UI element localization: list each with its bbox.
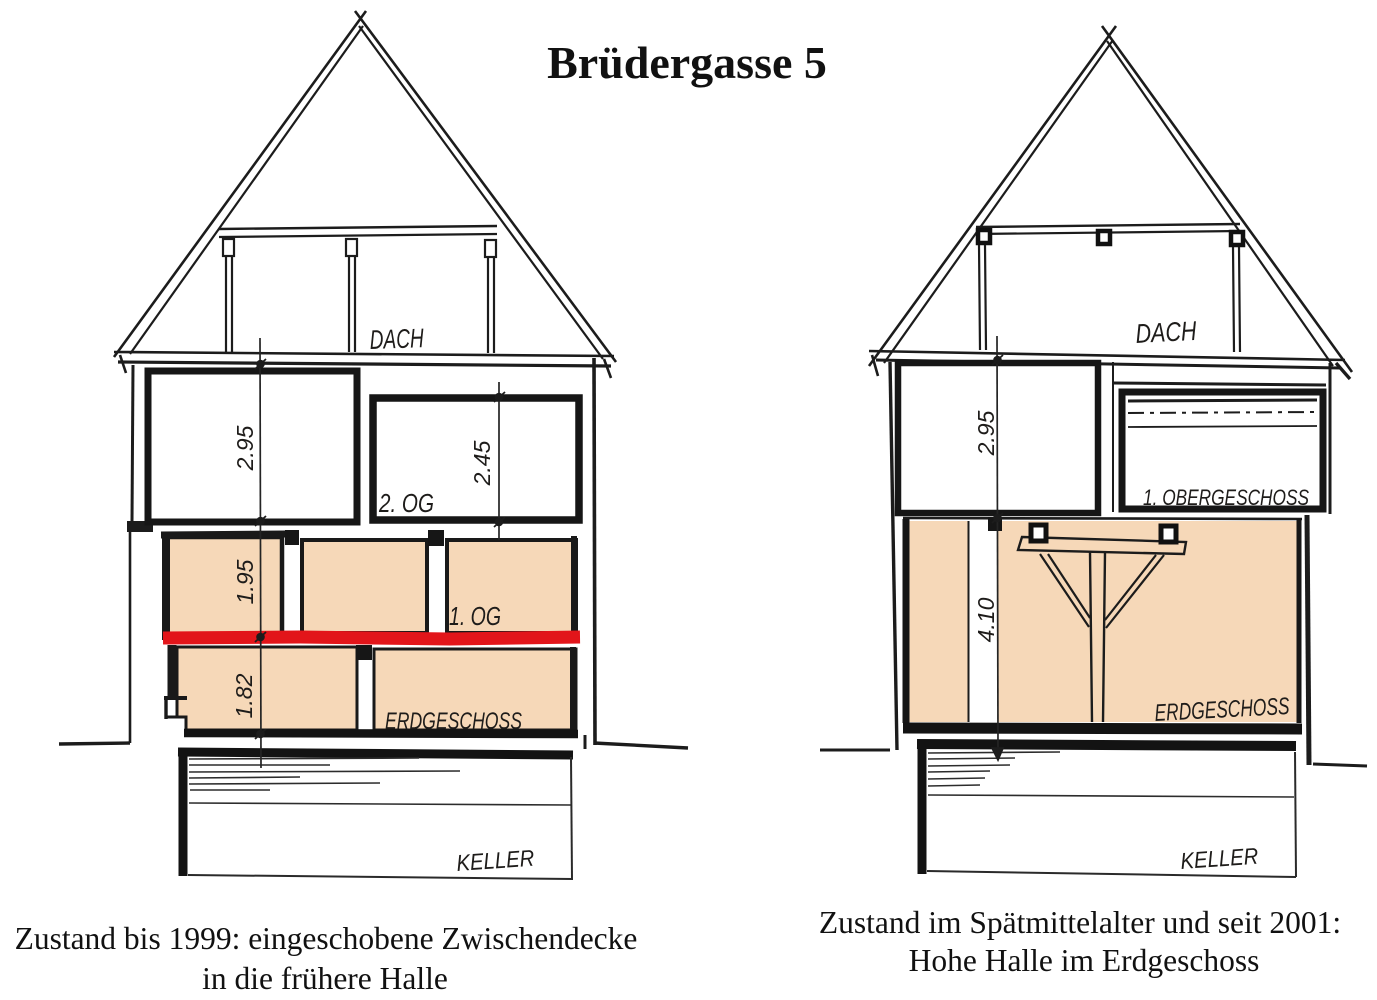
svg-text:Zustand im Spätmittelalter und: Zustand im Spätmittelalter und seit 2001…: [819, 905, 1341, 940]
svg-text:KELLER: KELLER: [456, 845, 536, 876]
svg-text:1.82: 1.82: [231, 673, 257, 718]
svg-text:2.45: 2.45: [469, 440, 495, 486]
svg-text:1. OG: 1. OG: [449, 601, 501, 631]
svg-text:Brüdergasse 5: Brüdergasse 5: [547, 37, 827, 88]
svg-text:1.95: 1.95: [232, 559, 258, 604]
svg-text:1. OBERGESCHOSS: 1. OBERGESCHOSS: [1143, 485, 1309, 510]
svg-text:Hohe Halle im Erdgeschoss: Hohe Halle im Erdgeschoss: [909, 943, 1260, 978]
svg-text:DACH: DACH: [1135, 316, 1198, 349]
svg-text:2. OG: 2. OG: [378, 488, 434, 518]
svg-text:4.10: 4.10: [973, 597, 999, 642]
svg-text:Zustand bis 1999: eingeschoben: Zustand bis 1999: eingeschobene Zwischen…: [15, 921, 638, 956]
svg-text:2.95: 2.95: [973, 410, 999, 456]
svg-text:in die frühere Halle: in die frühere Halle: [202, 961, 448, 996]
svg-text:KELLER: KELLER: [1180, 843, 1260, 874]
svg-text:DACH: DACH: [369, 323, 424, 355]
svg-text:2.95: 2.95: [232, 425, 258, 471]
